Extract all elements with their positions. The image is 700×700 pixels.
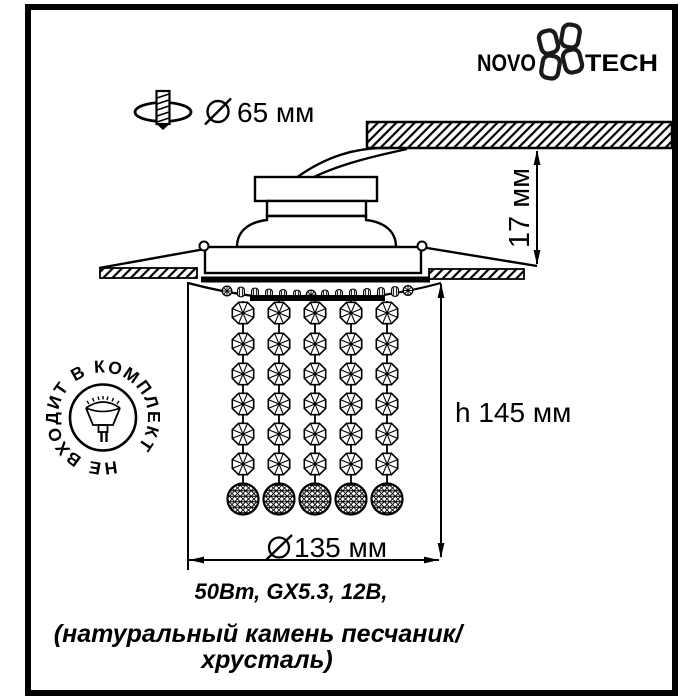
depth-label: 17 мм [504, 168, 536, 248]
crystal-ball-icon [372, 484, 403, 515]
lamp-icon [86, 396, 120, 442]
power-wire [296, 148, 407, 178]
crystal-ball-icon [264, 484, 295, 515]
svg-text:НЕ ВХОДИТ В КОМПЛЕКТ: НЕ ВХОДИТ В КОМПЛЕКТ [42, 356, 164, 479]
arrow-down-icon [438, 543, 445, 558]
diameter-icon [266, 535, 292, 560]
height-dimension: h 145 мм [438, 283, 572, 558]
drill-icon [135, 91, 191, 130]
trim-ring [205, 247, 421, 273]
flange-left [99, 249, 205, 268]
crystal-ball-icon [336, 484, 367, 515]
drill-hole-callout: 65 мм [135, 91, 314, 130]
arrow-down-icon [534, 250, 541, 265]
arrow-up-icon [534, 150, 541, 165]
depth-dimension: 17 мм [504, 150, 540, 265]
rim-bar-top [201, 277, 430, 283]
crystal-curtain [228, 301, 403, 515]
lamp-neck [267, 201, 366, 216]
stamp-circular-text: НЕ ВХОДИТ В КОМПЛЕКТ [42, 356, 164, 479]
ceiling-strip-right [429, 269, 524, 279]
not-included-stamp: НЕ ВХОДИТ В КОМПЛЕКТ [42, 356, 164, 479]
crystal-strand [372, 301, 403, 515]
terminal-box [255, 177, 377, 201]
brand-wordmark-right: TECH [585, 50, 658, 77]
screw-right [418, 242, 427, 251]
crystal-strand [264, 301, 295, 515]
arrow-right-icon [424, 557, 439, 564]
arrow-left-icon [189, 557, 204, 564]
flower-icon [538, 23, 584, 79]
rim-bar-inner [250, 295, 385, 301]
height-label: h 145 мм [455, 397, 571, 428]
spec-text: 50Вт, GX5.3, 12В, (натуральный камень пе… [54, 579, 466, 674]
ceiling-strip-left [100, 268, 197, 278]
diagram-page: NOVO TECH 65 мм [0, 0, 700, 700]
diameter-icon [205, 99, 231, 125]
arrow-up-icon [438, 283, 445, 298]
crystal-strand [336, 301, 367, 515]
novotech-logo: NOVO TECH [477, 23, 658, 79]
spec-line-3: хрусталь) [199, 646, 333, 674]
crystal-ball-icon [228, 484, 259, 515]
crystal-strand [228, 301, 259, 515]
fixture-body [99, 177, 537, 279]
crystal-ball-icon [300, 484, 331, 515]
lamp-housing [237, 216, 396, 247]
crystal-strand [300, 301, 331, 515]
spec-line-2: (натуральный камень песчаник/ [54, 620, 466, 648]
width-label: 135 мм [294, 532, 387, 563]
spec-line-1: 50Вт, GX5.3, 12В, [195, 579, 388, 604]
hole-diameter-label: 65 мм [237, 97, 314, 128]
diagram-canvas: NOVO TECH 65 мм [0, 0, 700, 700]
flange-right [421, 247, 537, 266]
ceiling-section [367, 122, 672, 148]
width-dimension: 135 мм [189, 532, 439, 563]
hatch-icon [367, 122, 672, 148]
brand-wordmark-left: NOVO [477, 50, 536, 77]
screw-left [200, 242, 209, 251]
stamp-circle [70, 385, 136, 451]
